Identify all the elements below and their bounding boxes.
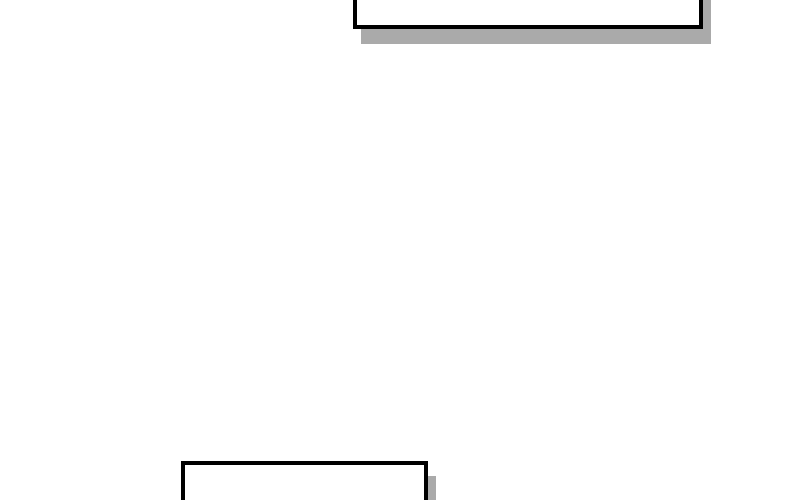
node-box-top bbox=[353, 0, 703, 29]
diagram-canvas bbox=[0, 0, 800, 500]
node-box-bottom bbox=[181, 461, 428, 500]
